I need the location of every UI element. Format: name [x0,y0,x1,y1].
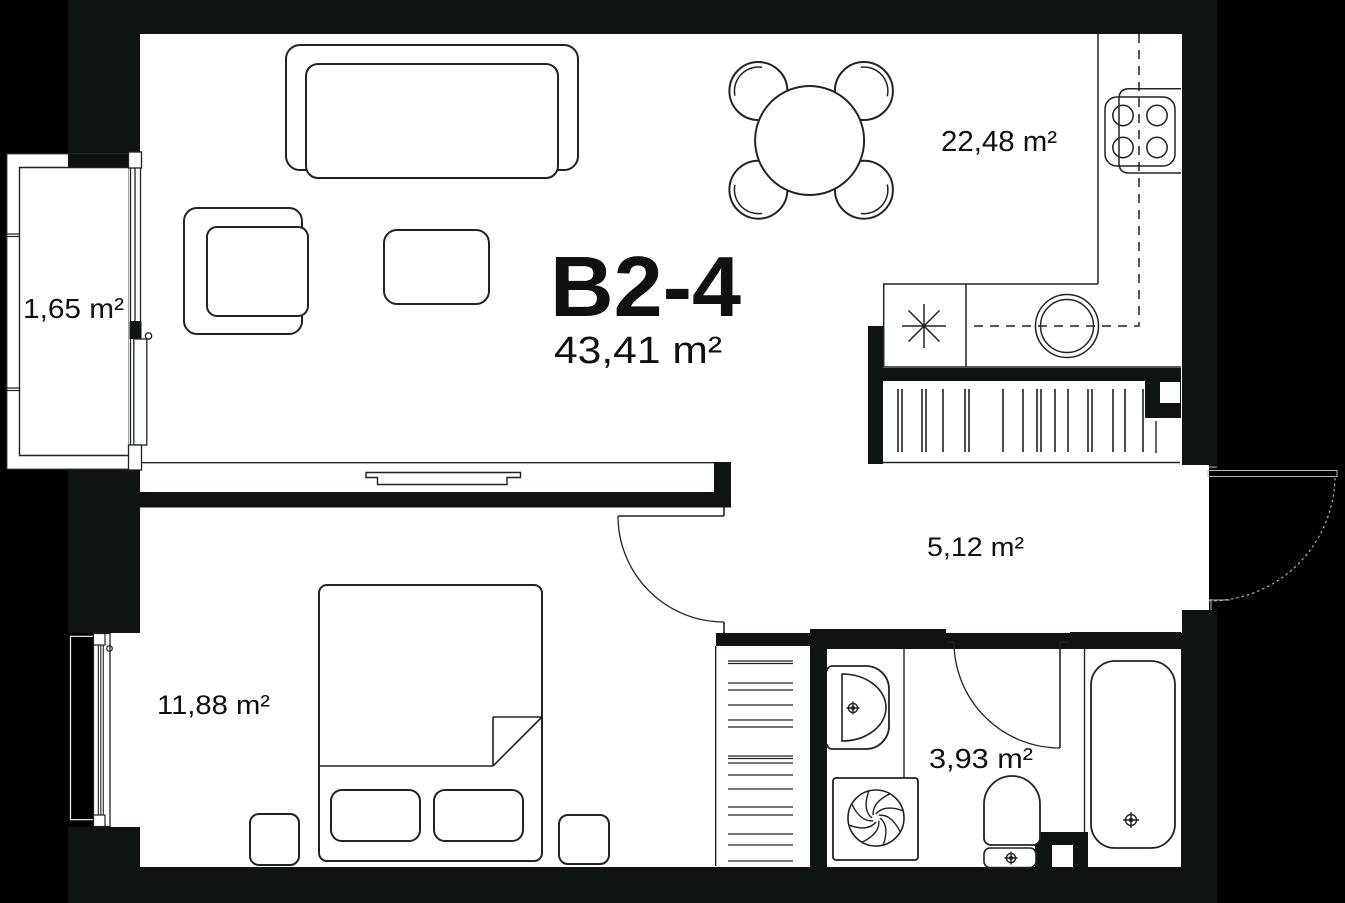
svg-text:22,48 m²: 22,48 m² [941,126,1057,158]
svg-text:B2-4: B2-4 [550,240,741,335]
svg-text:5,12 m²: 5,12 m² [927,532,1024,562]
svg-text:1,65 m²: 1,65 m² [23,293,124,324]
svg-text:11,88 m²: 11,88 m² [157,690,270,720]
svg-text:43,41 m²: 43,41 m² [554,330,722,372]
svg-text:3,93 m²: 3,93 m² [929,743,1033,774]
